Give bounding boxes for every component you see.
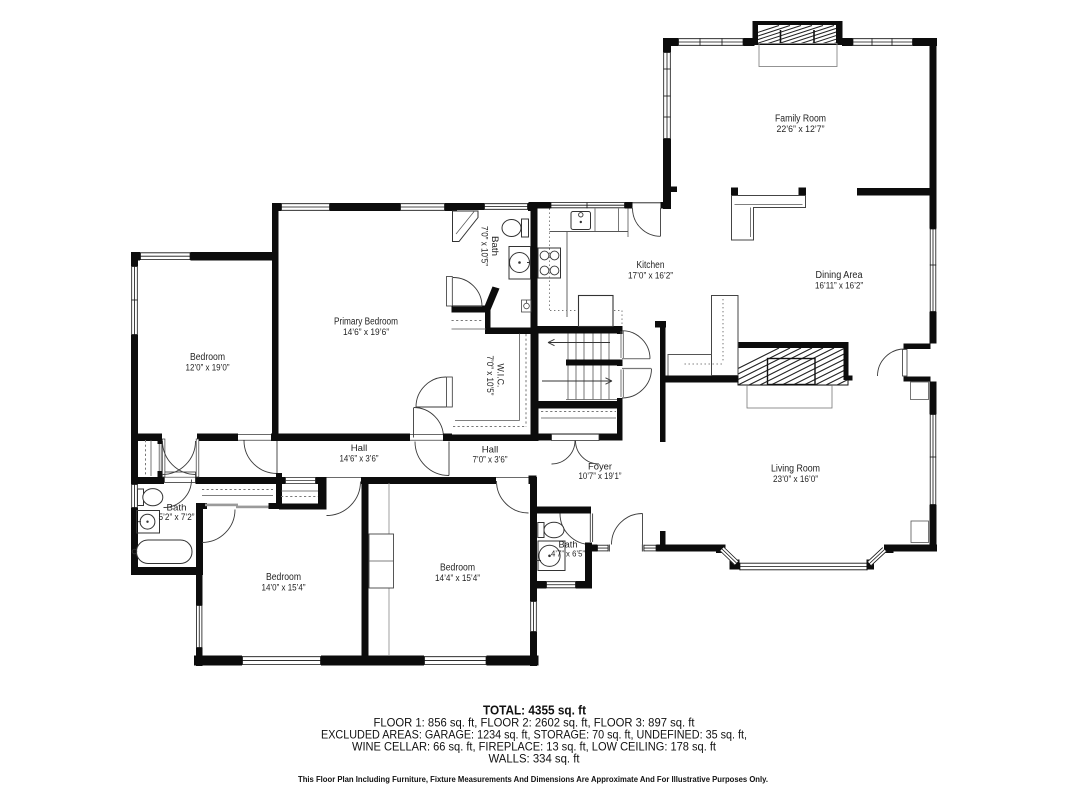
svg-text:23’0” x 16’0”: 23’0” x 16’0” (773, 474, 818, 484)
svg-text:14’6” x 19’6”: 14’6” x 19’6” (343, 327, 389, 337)
svg-text:Bedroom: Bedroom (440, 563, 475, 574)
svg-text:Living Room: Living Room (771, 464, 820, 475)
svg-text:10’7” x 19’1”: 10’7” x 19’1” (579, 471, 622, 481)
svg-text:Bedroom: Bedroom (190, 352, 225, 363)
svg-text:Kitchen: Kitchen (637, 260, 665, 271)
svg-text:Foyer: Foyer (588, 462, 612, 472)
svg-text:4’7” x 6’5”: 4’7” x 6’5” (551, 549, 585, 559)
svg-text:7’0” x 3’6”: 7’0” x 3’6” (473, 455, 508, 465)
svg-text:Hall: Hall (351, 443, 368, 453)
svg-text:Dining Area: Dining Area (816, 270, 863, 281)
svg-text:Primary Bedroom: Primary Bedroom (334, 317, 398, 328)
svg-text:Bedroom: Bedroom (266, 572, 301, 583)
svg-text:16’11” x 16’2”: 16’11” x 16’2” (815, 281, 863, 291)
svg-text:7’0” x 10’5”: 7’0” x 10’5” (485, 356, 495, 396)
svg-text:17’0” x 16’2”: 17’0” x 16’2” (628, 271, 673, 281)
svg-text:12’0” x 19’0”: 12’0” x 19’0” (186, 363, 230, 373)
svg-text:14’6” x 3’6”: 14’6” x 3’6” (340, 454, 379, 464)
svg-text:7’0” x 10’5”: 7’0” x 10’5” (480, 226, 490, 266)
svg-text:5’2” x 7’2”: 5’2” x 7’2” (159, 512, 195, 522)
svg-text:WALLS: 334 sq. ft: WALLS: 334 sq. ft (489, 751, 581, 765)
svg-text:Bath: Bath (490, 236, 500, 256)
svg-text:14’4” x 15’4”: 14’4” x 15’4” (435, 573, 480, 583)
svg-text:22’6” x 12’7”: 22’6” x 12’7” (777, 124, 825, 134)
svg-text:This Floor Plan Including Furn: This Floor Plan Including Furniture, Fix… (298, 774, 768, 784)
svg-text:W.I.C.: W.I.C. (496, 364, 506, 388)
svg-text:Family Room: Family Room (775, 114, 826, 125)
svg-text:Bath: Bath (167, 503, 187, 513)
svg-text:Hall: Hall (482, 445, 499, 455)
svg-text:14’0” x 15’4”: 14’0” x 15’4” (262, 583, 306, 593)
